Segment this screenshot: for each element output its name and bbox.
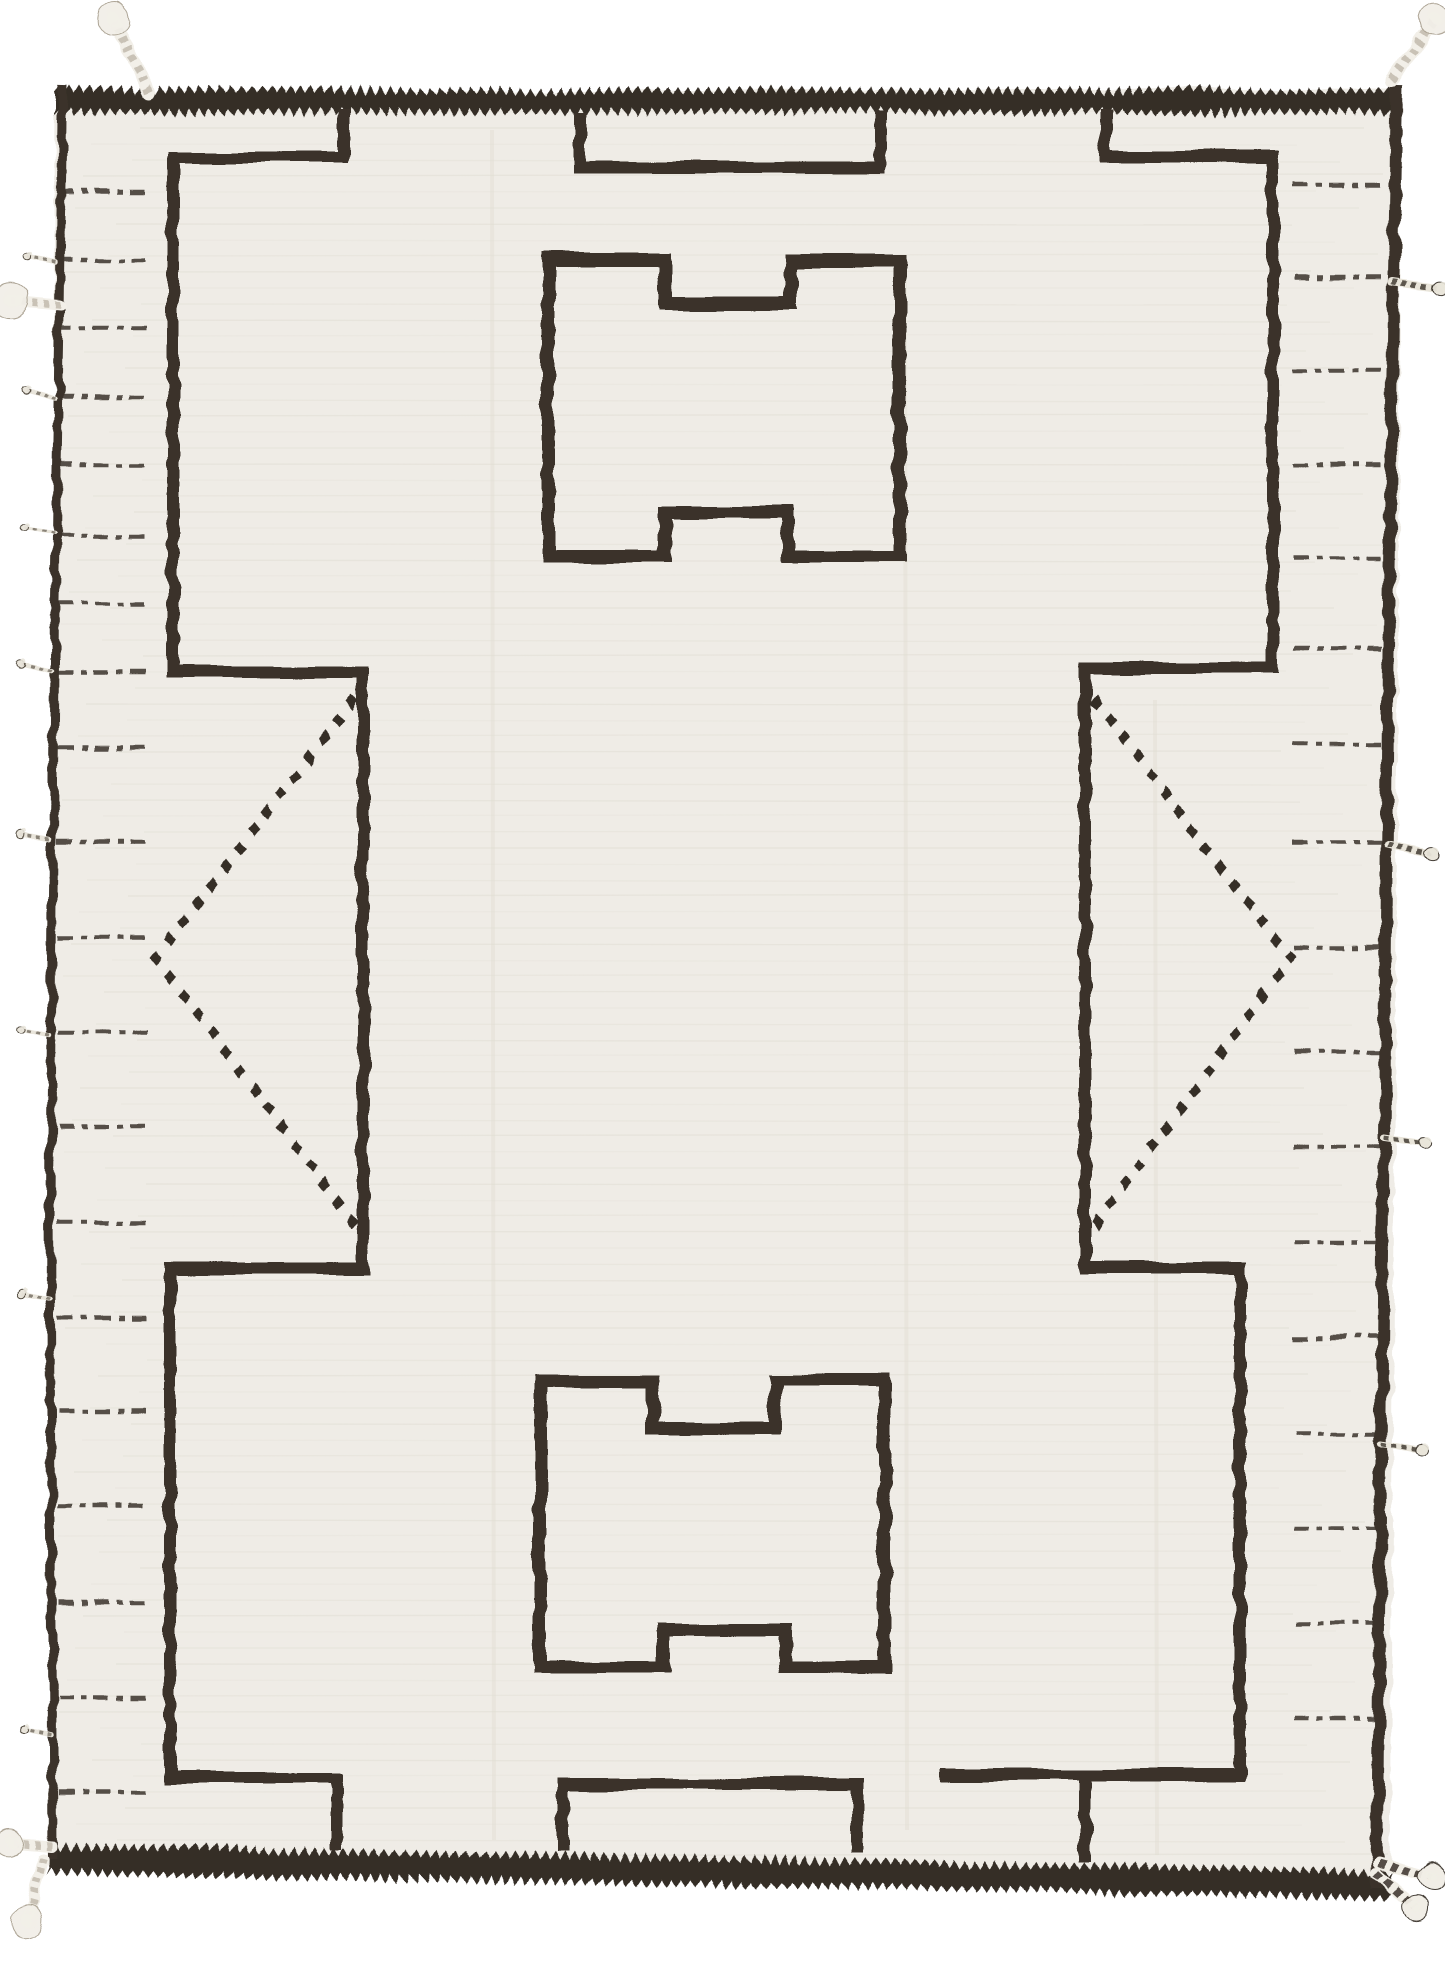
edge-wisp-left-8: [21, 1724, 52, 1735]
corner-tassel-bottom-left-a: [0, 1828, 52, 1856]
edge-wisp-left-1: [23, 251, 56, 263]
rug-image: [0, 0, 1445, 1965]
edge-wisp-left-2: [20, 386, 55, 400]
corner-tassel-top-right: [1392, 3, 1445, 80]
corner-tassel-top-left: [98, 3, 148, 92]
edge-wisp-left-6: [19, 1024, 50, 1035]
edge-wisp-left-3: [19, 522, 53, 533]
edge-wisp-left-5: [17, 829, 51, 840]
edge-wisp-left-7: [16, 1289, 50, 1300]
corner-tassel-bottom-left-b: [11, 1858, 44, 1938]
rug-body: [48, 88, 1402, 1890]
photo-stage: [0, 0, 1445, 1965]
edge-tassel-top-left: [0, 283, 60, 319]
edge-wisp-left-4: [17, 657, 52, 670]
